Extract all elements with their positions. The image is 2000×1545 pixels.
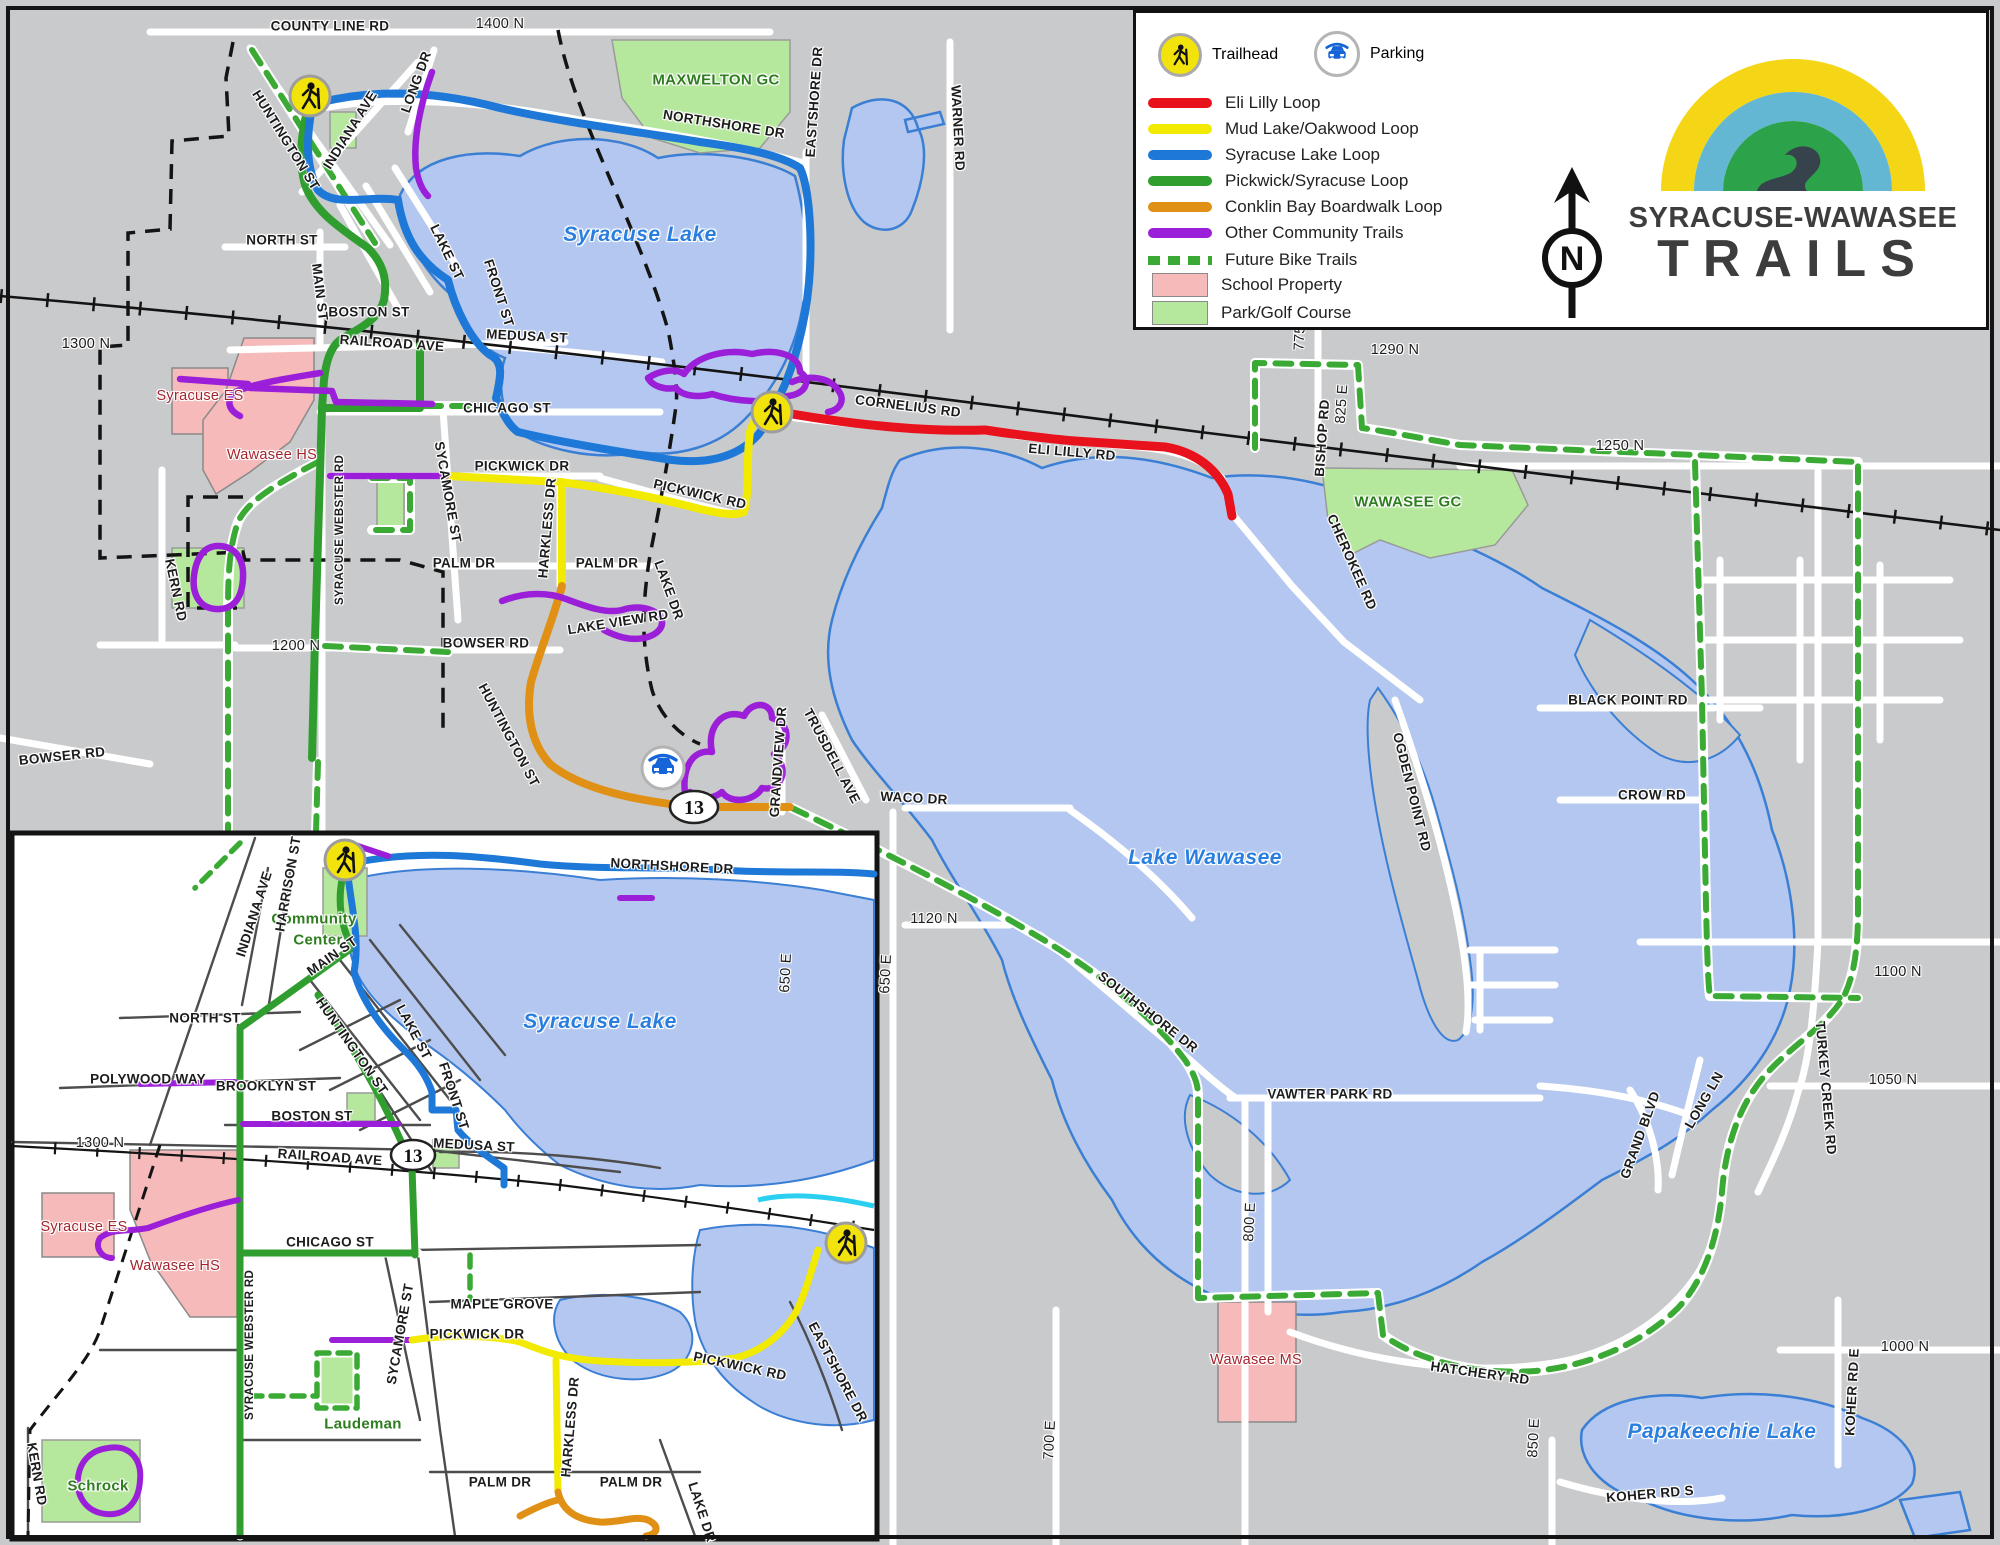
legend-label: Other Community Trails (1225, 223, 1404, 243)
future-trails-swatch (1148, 256, 1212, 265)
legend-trailhead-item: Trailhead (1158, 33, 1278, 77)
trailhead-icon (290, 76, 330, 116)
legend-parking-item: Parking (1314, 31, 1424, 77)
legend-line-item: Pickwick/Syracuse Loop (1148, 171, 1408, 191)
legend-label: Eli Lilly Loop (1225, 93, 1320, 113)
legend-line-item: Conklin Bay Boardwalk Loop (1148, 197, 1442, 217)
syracuse-lake-swatch (1148, 150, 1212, 160)
eli-lilly-swatch (1148, 98, 1212, 108)
trail-map: 13 13 COUNTY LINE RD1400 NHUNTINGTON STI… (0, 0, 2000, 1545)
legend-line-item: Mud Lake/Oakwood Loop (1148, 119, 1419, 139)
trailhead-icon (1158, 33, 1202, 77)
route-13-badge: 13 (670, 791, 718, 823)
park-golf-swatch (1152, 301, 1208, 325)
legend-label: School Property (1221, 275, 1342, 295)
legend-line-item: Future Bike Trails (1148, 250, 1357, 270)
legend-line-item: Eli Lilly Loop (1148, 93, 1320, 113)
legend-label: Future Bike Trails (1225, 250, 1357, 270)
trailhead-icon (826, 1223, 866, 1263)
parking-icon (1314, 31, 1360, 77)
route-13-badge: 13 (391, 1140, 435, 1170)
logo-line2: TRAILS (1628, 229, 1958, 289)
legend-label: Mud Lake/Oakwood Loop (1225, 119, 1419, 139)
legend-parking-label: Parking (1370, 45, 1424, 63)
logo-arcs (1648, 43, 1938, 193)
legend-area-item: School Property (1152, 273, 1342, 297)
community-trails-swatch (1148, 228, 1212, 238)
parking-icon (642, 747, 684, 789)
legend-area-item: Park/Golf Course (1152, 301, 1351, 325)
trailhead-icon (752, 392, 792, 432)
school-property-swatch (1152, 273, 1208, 297)
svg-text:13: 13 (684, 797, 704, 819)
logo: SYRACUSE-WAWASEE TRAILS (1628, 43, 1958, 293)
legend-trailhead-label: Trailhead (1212, 46, 1278, 64)
legend-label: Conklin Bay Boardwalk Loop (1225, 197, 1442, 217)
north-arrow: N (1536, 163, 1608, 330)
inset-map (12, 833, 877, 1539)
legend-line-item: Syracuse Lake Loop (1148, 145, 1380, 165)
conklin-swatch (1148, 202, 1212, 212)
legend-label: Syracuse Lake Loop (1225, 145, 1380, 165)
trailhead-icon (325, 840, 365, 880)
svg-text:N: N (1560, 240, 1585, 278)
svg-text:13: 13 (404, 1146, 423, 1167)
mud-lake-swatch (1148, 124, 1212, 134)
legend-label: Pickwick/Syracuse Loop (1225, 171, 1408, 191)
pickwick-swatch (1148, 176, 1212, 186)
legend-line-item: Other Community Trails (1148, 223, 1404, 243)
legend-label: Park/Golf Course (1221, 303, 1351, 323)
legend-panel: Trailhead Parking Eli Lilly Loop Mud Lak… (1133, 10, 1989, 330)
